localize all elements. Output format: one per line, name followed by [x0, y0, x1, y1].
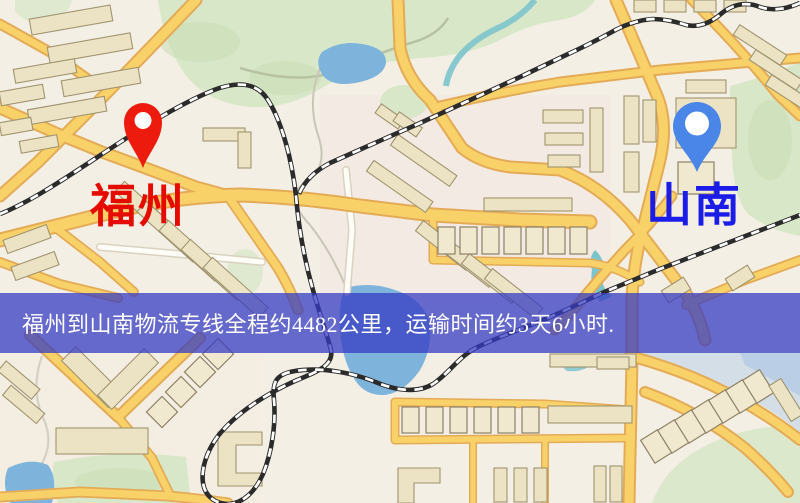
route-info-banner: 福州到山南物流专线全程约4482公里，运输时间约3天6小时. — [0, 293, 800, 353]
origin-pin-hole — [135, 112, 152, 129]
map-canvas[interactable]: 福州 山南 福州到山南物流专线全程约4482公里，运输时间约3天6小时. — [0, 0, 800, 503]
route-info-text: 福州到山南物流专线全程约4482公里，运输时间约3天6小时. — [22, 307, 615, 339]
destination-pin-label: 山南 — [646, 180, 742, 231]
map-artwork: 福州 山南 — [0, 0, 800, 503]
destination-pin-hole — [685, 112, 709, 136]
origin-pin-label: 福州 — [89, 181, 186, 232]
